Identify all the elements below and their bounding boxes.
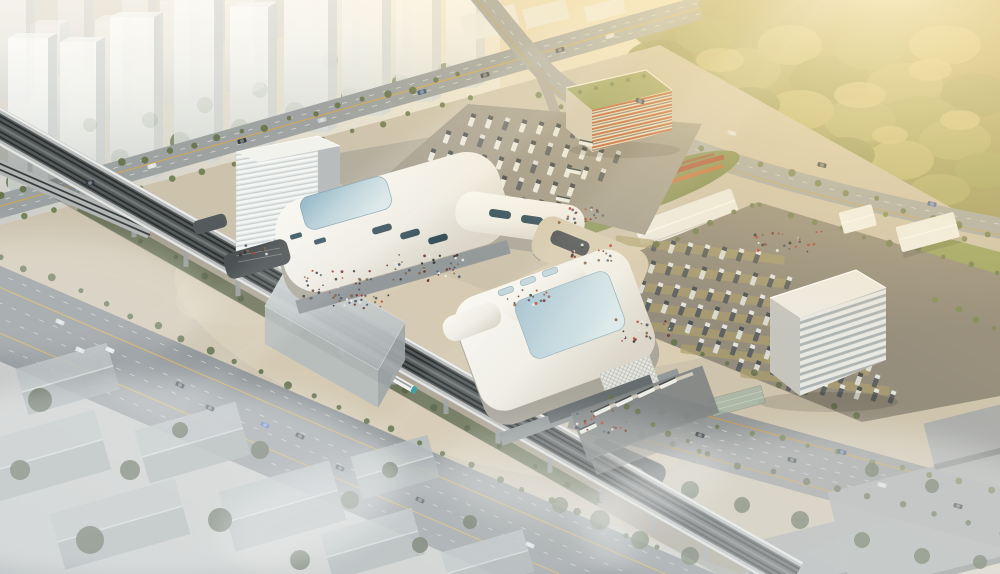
aerial-rendering	[0, 0, 1000, 574]
scene-canvas	[0, 0, 1000, 574]
